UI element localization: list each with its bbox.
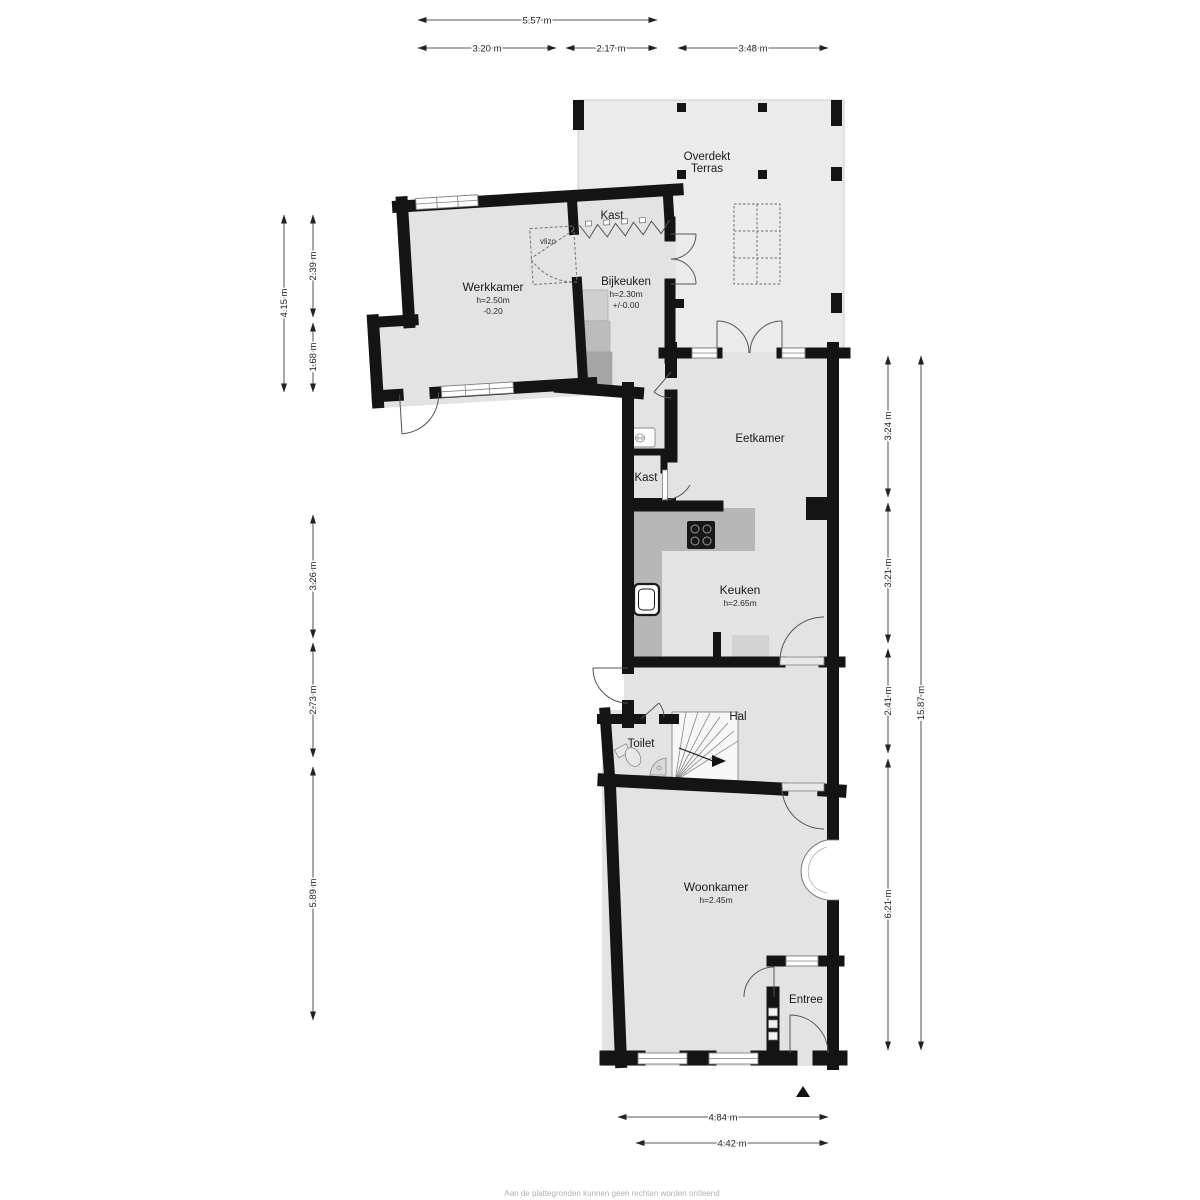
dimension-top-3: 3.48 m bbox=[678, 44, 828, 55]
svg-text:3.48 m: 3.48 m bbox=[738, 44, 767, 55]
dimension-top-total: 5.57 m bbox=[418, 16, 657, 27]
dimension-left-3: 1.68 m bbox=[308, 323, 319, 392]
svg-text:5.89 m: 5.89 m bbox=[308, 878, 319, 907]
svg-text:4.42 m: 4.42 m bbox=[717, 1139, 746, 1150]
floor-plan: Overdekt Terras Kast Werkkamer h=2.50m -… bbox=[0, 0, 1200, 1200]
label-werkkamer: Werkkamer bbox=[462, 280, 523, 294]
label-keuken-h: h=2.65m bbox=[723, 598, 756, 608]
svg-text:4.15 m: 4.15 m bbox=[279, 288, 290, 317]
staircase bbox=[672, 712, 738, 782]
svg-text:2.39 m: 2.39 m bbox=[308, 251, 319, 280]
dimension-right-4: 6.21 m bbox=[883, 759, 894, 1050]
label-woonkamer-h: h=2.45m bbox=[699, 895, 732, 905]
label-entree: Entree bbox=[789, 994, 823, 1006]
label-eetkamer: Eetkamer bbox=[735, 433, 784, 445]
label-kast-mid: Kast bbox=[634, 472, 658, 484]
dimension-left-5: 2.73 m bbox=[308, 643, 319, 757]
north-arrow-icon bbox=[796, 1086, 810, 1097]
label-keuken: Keuken bbox=[720, 583, 761, 597]
floorplan-page: Overdekt Terras Kast Werkkamer h=2.50m -… bbox=[0, 0, 1200, 1200]
label-vlizo: vlizo bbox=[540, 237, 557, 246]
svg-text:2.17 m: 2.17 m bbox=[596, 44, 625, 55]
svg-text:3.20 m: 3.20 m bbox=[472, 44, 501, 55]
dimension-right-2: 3.21 m bbox=[883, 503, 894, 643]
svg-text:3.26 m: 3.26 m bbox=[308, 561, 319, 590]
label-bijkeuken-h: h=2.30m bbox=[609, 289, 642, 299]
svg-text:4.84 m: 4.84 m bbox=[708, 1113, 737, 1124]
dimension-left-2: 2.39 m bbox=[308, 215, 319, 317]
dimension-right-total: 15.87 m bbox=[916, 356, 927, 1050]
dimension-left-1: 4.15 m bbox=[279, 215, 290, 392]
svg-text:2.41 m: 2.41 m bbox=[883, 686, 894, 715]
dimension-top-1: 3.20 m bbox=[418, 44, 556, 55]
meter-boxes bbox=[769, 1008, 778, 1040]
label-woonkamer: Woonkamer bbox=[684, 880, 748, 894]
dimension-bottom-2: 4.42 m bbox=[636, 1139, 828, 1150]
label-terras-2: Terras bbox=[691, 163, 723, 175]
svg-text:15.87 m: 15.87 m bbox=[916, 686, 927, 720]
dimension-right-3: 2.41 m bbox=[883, 649, 894, 753]
label-kast-top: Kast bbox=[600, 210, 624, 222]
dimension-bottom-1: 4.84 m bbox=[618, 1113, 828, 1124]
cooktop bbox=[687, 521, 715, 549]
label-werkkamer-level: -0.20 bbox=[483, 306, 503, 316]
label-bijkeuken-level: +/-0.00 bbox=[613, 300, 640, 310]
label-werkkamer-h: h=2.50m bbox=[476, 295, 509, 305]
svg-text:3.21 m: 3.21 m bbox=[883, 558, 894, 587]
dimension-right-1: 3.24 m bbox=[883, 356, 894, 497]
label-terras-1: Overdekt bbox=[684, 151, 731, 163]
label-toilet: Toilet bbox=[628, 738, 656, 750]
svg-text:2.73 m: 2.73 m bbox=[308, 685, 319, 714]
room-fills bbox=[366, 100, 844, 1066]
svg-text:1.68 m: 1.68 m bbox=[308, 342, 319, 371]
dimension-left-4: 3.26 m bbox=[308, 515, 319, 638]
disclaimer-text: Aan de plattegronden kunnen geen rechten… bbox=[504, 1189, 719, 1198]
kitchen-sink bbox=[631, 584, 659, 615]
label-hal: Hal bbox=[729, 711, 746, 723]
label-bijkeuken: Bijkeuken bbox=[601, 276, 651, 288]
dimension-left-6: 5.89 m bbox=[308, 767, 319, 1020]
dimension-top-2: 2.17 m bbox=[566, 44, 657, 55]
kitchen-cabinet bbox=[732, 635, 769, 660]
svg-text:6.21 m: 6.21 m bbox=[883, 889, 894, 918]
boiler bbox=[632, 428, 655, 447]
svg-text:5.57 m: 5.57 m bbox=[522, 16, 551, 27]
svg-text:3.24 m: 3.24 m bbox=[883, 411, 894, 440]
